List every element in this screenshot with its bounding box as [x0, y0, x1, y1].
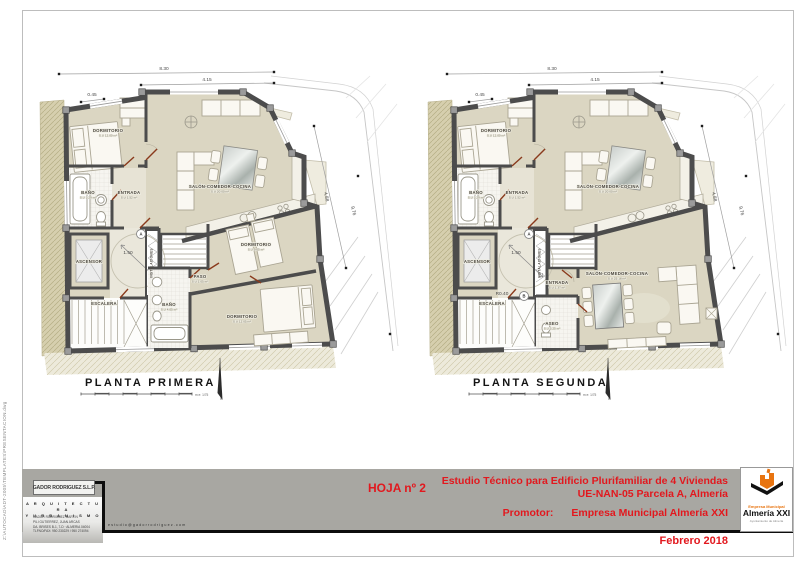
room-label: ENTRADA: [118, 190, 141, 195]
room-label: BAÑO: [81, 190, 95, 195]
logo-line2: Almería XXI: [741, 509, 792, 518]
dimension-label: 1.50: [511, 250, 521, 256]
room-label: DORMITORIO: [481, 128, 512, 133]
room-label: BAÑO: [469, 190, 483, 195]
firm-email: estudio@gadorrodriguez.com: [108, 523, 186, 527]
dimension-label: 8.30: [159, 66, 169, 72]
node-letter: B: [522, 294, 525, 299]
logo-line3: Ayuntamiento de Almería: [741, 519, 792, 523]
promoter-line: Promotor:Empresa Municipal Almería XXI: [420, 507, 728, 519]
room-label: DORMITORIO: [227, 314, 258, 319]
dimension-label: 4.15: [202, 77, 212, 83]
dimension-label: R0.40: [496, 291, 509, 297]
scale-note: m e: 1/75: [583, 393, 597, 397]
room-area-label: S.U 20.00 m²: [211, 190, 229, 194]
double-bed-2: [260, 285, 316, 332]
room-area-label: S.U 20.00 m²: [599, 190, 617, 194]
firm-details: GADOR RODRIGUEZ MARTIN PILI GUTIERREZ, J…: [33, 515, 103, 534]
room-label: BAÑO: [162, 302, 176, 307]
drawing-sheet: Z:\AUTOCAD\ADT-2005\TEMPLATES\PRESENTACI…: [0, 0, 802, 567]
dimension-label: 9.76: [349, 206, 357, 217]
room-area-label: S.U 3.25 m²: [544, 327, 561, 331]
scale-note: m e: 1/75: [195, 393, 209, 397]
room-label: DORMITORIO: [241, 242, 272, 247]
room-area-label: S.U 12.05 m²: [233, 320, 251, 324]
project-title-line2: UE-NAN-05 Parcela A, Almería: [420, 488, 728, 500]
room-label: ENTRADA: [506, 190, 529, 195]
side-table: [706, 308, 717, 319]
almeria-xxi-logo-icon: [747, 468, 787, 498]
node-letter: A: [139, 232, 142, 237]
dining-table: [582, 282, 635, 329]
room-area-label: S.U 1.52 m²: [509, 196, 526, 200]
plan-title: PLANTA PRIMERA: [85, 377, 216, 389]
node-letter: A: [527, 232, 530, 237]
dimension-label: 0.45: [475, 92, 485, 98]
dimension-label: 8.30: [547, 66, 557, 72]
promoter-value: Empresa Municipal Almería XXI: [571, 507, 728, 519]
room-label: ASEO: [545, 321, 559, 326]
almeria-xxi-logo: Empresa Municipal Almería XXI Ayuntamien…: [740, 467, 793, 532]
dimension-label: 9.76: [737, 206, 745, 217]
floor-plan-planta-segunda: DORMITORIOS.U 12.00 m²BAÑOS.U 3.29 m²ENT…: [412, 56, 788, 408]
dimension-label: 1.50: [123, 250, 133, 256]
room-label: DORMITORIO: [93, 128, 124, 133]
room-label: ASCENSOR: [76, 259, 103, 264]
project-title-line1: Estudio Técnico para Edificio Plurifamil…: [420, 475, 728, 487]
room-label: INSTALACIONES: [538, 248, 542, 278]
room-area-label: S.U 4.05 m²: [161, 308, 178, 312]
room-label: SALÓN-COMEDOR-COCINA: [577, 184, 639, 189]
promoter-label: Promotor:: [503, 507, 554, 519]
file-path-vertical: Z:\AUTOCAD\ADT-2005\TEMPLATES\PRESENTACI…: [2, 388, 13, 540]
firm-name: GADOR RODRIGUEZ S.L.P.: [33, 485, 95, 491]
room-label: ESCALERA: [479, 301, 505, 306]
room-area-label: S.U 12.00 m²: [99, 134, 117, 138]
armchair: [657, 322, 671, 334]
room-area-label: S.U 1.52 m²: [121, 196, 138, 200]
room-label: ENTRADA: [546, 280, 569, 285]
sheet-date: Febrero 2018: [540, 535, 728, 547]
room-area-label: S.U 1.37 m²: [549, 286, 566, 290]
room-label: SALÓN-COMEDOR-COCINA: [189, 184, 251, 189]
room-area-label: S.U 25.18 m²: [608, 277, 626, 281]
room-area-label: S.U 3.29 m²: [468, 196, 485, 200]
room-label: INSTALACIONES: [150, 248, 154, 278]
room-area-label: S.U 12.00 m²: [487, 134, 505, 138]
dimension-label: 4.15: [590, 77, 600, 83]
room-area-label: S.U 3.29 m²: [80, 196, 97, 200]
room-label: SALÓN-COMEDOR-COCINA: [586, 271, 648, 276]
project-title-block: Estudio Técnico para Edificio Plurifamil…: [420, 475, 728, 519]
firm-logo: GADOR RODRIGUEZ S.L.P.: [33, 480, 95, 495]
room-area-label: S.U 9.05 m²: [248, 248, 265, 252]
floor-plan-planta-primera: DORMITORIOS.U 12.00 m²BAÑOS.U 3.29 m²ENT…: [24, 56, 400, 408]
plan-title: PLANTA SEGUNDA: [473, 377, 608, 389]
room-label: PASO: [194, 274, 207, 279]
titleblock-border-bottom: [102, 530, 793, 533]
room-label: ESCALERA: [91, 301, 117, 306]
room-area-label: S.U 1.05 m²: [192, 280, 209, 284]
dimension-label: 0.45: [87, 92, 97, 98]
room-label: ASCENSOR: [464, 259, 491, 264]
